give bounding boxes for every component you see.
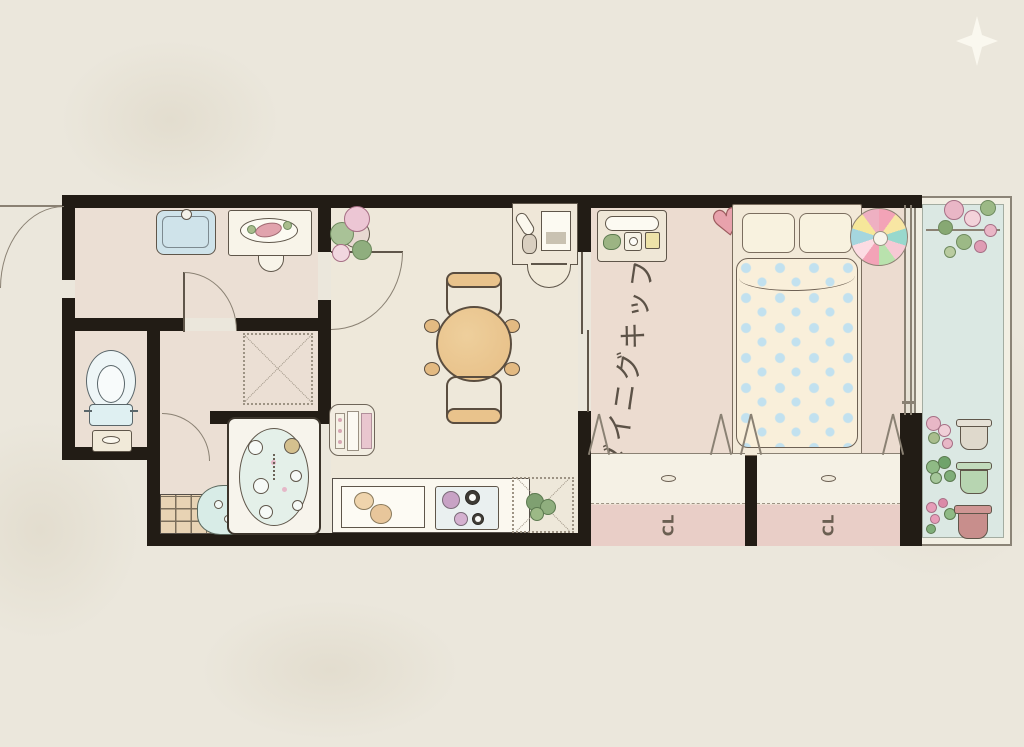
dining-set [420,270,530,426]
wall-toilet-right [147,331,160,460]
tablet-screen [541,211,571,251]
nightstand [597,210,667,262]
floor-plan-canvas: ダイニグキッフ ♥ CL CL [0,0,1024,747]
kitchen-sink [341,486,425,528]
wall-closet-divider [745,453,757,546]
desk-item [522,234,537,254]
toilet-tank [89,404,133,426]
bathtub [227,417,321,535]
door-handle [821,475,836,482]
toilet [84,348,138,454]
door-handle [661,475,676,482]
wall-ldk-bedroom-bottom [578,411,591,546]
wall-powder-right-mid [318,300,331,424]
wall-bedroom-right-stub [900,413,922,546]
closet-doors [757,453,900,504]
potted-plant [328,204,390,268]
paper-stain [200,600,460,740]
stove-burner [442,491,460,509]
wash-basin-blue [156,210,216,255]
dining-chair-bottom [446,376,502,424]
bath-sponge [284,438,300,454]
closet-right: CL [757,453,900,546]
flower-pot-white [924,412,1004,460]
polkadot-blanket [736,258,858,448]
closet-label: CL [819,514,837,537]
balcony-window-line [910,205,912,415]
pillow-right [799,213,852,253]
desk [512,203,578,265]
paper-stain [60,40,280,200]
nightstand-tray [605,216,659,231]
pillow-left [742,213,795,253]
closet-label: CL [659,514,677,537]
sparkle-icon [956,16,998,66]
stove-burner [454,512,468,526]
wall-powder-bottom-right [236,318,331,331]
wall-powder-bottom-left [62,318,184,331]
nightstand-plant [603,234,621,250]
dashed-floor-mat [243,333,313,405]
vanity-counter [228,210,312,256]
closet-left: CL [591,453,745,546]
closet-doors [591,453,745,504]
closet-base: CL [757,505,900,546]
desk-item [514,211,537,238]
washing-machine [329,404,375,456]
kitchen-counter [332,478,530,533]
succulent-pot-green [924,455,1004,503]
herb-plant [522,487,566,527]
wall-ldk-bedroom-top [578,195,591,252]
fruit [370,504,392,524]
entry-door-arc [0,206,64,288]
flower-bouquet [930,198,1006,270]
closet-base: CL [591,505,745,546]
desk-chair-back [531,263,567,265]
beach-ball-color-wheel [850,208,908,266]
blanket-fold [739,263,855,291]
round-dining-table [436,306,512,382]
cooktop-stove [435,486,499,530]
tulip-pot-pink [922,497,1006,545]
bath-plug-chain [273,454,277,480]
sliding-door-panel [581,252,583,334]
sliding-door-panel [587,330,589,412]
nightstand-box [645,232,660,249]
nightstand-kettle [624,232,642,251]
balcony-window-latch [902,401,914,404]
